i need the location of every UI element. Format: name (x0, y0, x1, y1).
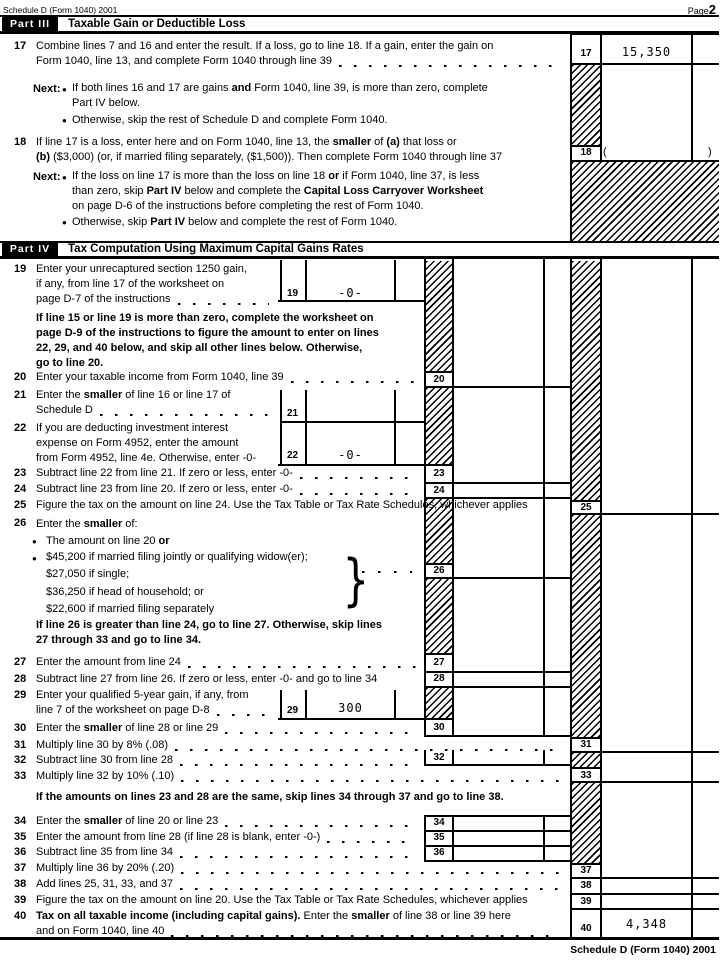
next-18-bullet-2: Otherwise, skip Part IV below and comple… (72, 215, 397, 230)
line-21-box-label: 21 (280, 407, 305, 420)
dotted-leader (188, 666, 416, 668)
line-40-text: Tax on all taxable income (including cap… (36, 910, 564, 940)
line-18-amount-field[interactable] (605, 146, 689, 159)
line-24-box-label: 24 (424, 484, 454, 497)
line-25-text: Figure the tax on the amount on line 24.… (36, 499, 566, 514)
line-21-text: Enter the smaller of line 16 or line 17 … (36, 389, 274, 419)
line-22-box-label: 22 (280, 449, 305, 462)
line-20-box-label: 20 (424, 373, 454, 386)
footer-form-id: Schedule D (Form 1040) 2001 (440, 944, 716, 956)
part-iii-title: Taxable Gain or Deductible Loss (68, 18, 245, 30)
line-37-number: 37 (14, 862, 26, 874)
dotted-leader (339, 65, 556, 67)
line-34-number: 34 (14, 815, 26, 827)
line-26-bullet-2: $45,200 if married filing jointly or qua… (46, 551, 346, 621)
line-28-amount-field[interactable] (454, 673, 542, 685)
line-26-bullet-1: The amount on line 20 or (46, 534, 170, 549)
line-38-amount-field[interactable] (602, 879, 690, 892)
line-35-amount-field[interactable] (454, 831, 542, 844)
line-28-number: 28 (14, 673, 26, 685)
next-17-bullet-2: Otherwise, skip the rest of Schedule D a… (72, 113, 388, 128)
line-39-number: 39 (14, 894, 26, 906)
bullet-icon: ● (32, 537, 37, 547)
line-23-number: 23 (14, 467, 26, 479)
line-18-box-label: 18 (570, 146, 602, 159)
hatch-fill (572, 783, 600, 863)
hatch-fill (426, 261, 452, 371)
line-21-amount-field[interactable] (307, 406, 393, 420)
line-27-text: Enter the amount from line 24 (36, 656, 420, 671)
dotted-leader (300, 493, 416, 495)
line-37-amount-field[interactable] (602, 865, 690, 876)
dotted-leader (327, 841, 416, 843)
line-32-text: Subtract line 30 from line 28 (36, 754, 420, 769)
grid-line (280, 421, 424, 423)
grid-line (424, 464, 454, 466)
dotted-leader (291, 381, 416, 383)
grid-line (424, 718, 454, 720)
line-26-amount-field[interactable] (454, 565, 542, 576)
line-18-text: If line 17 is a loss, enter here and on … (36, 136, 560, 166)
line-38-box-label: 38 (570, 879, 602, 892)
note-after-26: If line 26 is greater than line 24, go t… (36, 619, 428, 650)
hatch-fill (572, 162, 719, 241)
line-30-text: Enter the smaller of line 28 or line 29 (36, 722, 420, 737)
line-37-box-label: 37 (570, 864, 602, 877)
line-31-number: 31 (14, 739, 26, 751)
line-40-box-label: 40 (570, 922, 602, 935)
line-24-number: 24 (14, 483, 26, 495)
bullet-icon: ● (62, 218, 67, 228)
line-30-amount-field[interactable] (454, 720, 542, 734)
line-17-number: 17 (14, 40, 26, 52)
line-27-box-label: 27 (424, 656, 454, 669)
line-24-text: Subtract line 23 from line 20. If zero o… (36, 483, 420, 498)
line-28-box-label: 28 (424, 672, 454, 685)
line-34-box-label: 34 (424, 816, 454, 829)
line-18-paren-close: ) (708, 146, 712, 158)
dotted-leader (225, 825, 416, 827)
line-39-box-label: 39 (570, 895, 602, 908)
line-29-number: 29 (14, 689, 26, 701)
rule (0, 15, 719, 17)
hatch-fill (426, 579, 452, 653)
line-25-amount-field[interactable] (602, 502, 690, 512)
grid-line (394, 690, 396, 720)
line-26-text: Enter the smaller of: (36, 517, 138, 532)
grid-line (600, 259, 602, 939)
line-36-amount-field[interactable] (454, 846, 542, 859)
line-20-text: Enter your taxable income from Form 1040… (36, 371, 420, 386)
line-19-box-label: 19 (280, 287, 305, 300)
line-35-box-label: 35 (424, 831, 454, 844)
line-24-amount-field[interactable] (454, 485, 542, 496)
line-17-amount-field[interactable]: 15,350 (602, 45, 691, 59)
line-27-amount-field[interactable] (454, 655, 542, 670)
grid-line (424, 653, 454, 655)
line-33-amount-field[interactable] (602, 770, 690, 780)
dotted-leader (362, 571, 412, 573)
hatch-fill (426, 688, 452, 718)
dotted-leader (100, 414, 270, 416)
line-34-amount-field[interactable] (454, 816, 542, 829)
line-32-number: 32 (14, 754, 26, 766)
grid-line (394, 260, 396, 302)
note-after-19: If line 15 or line 19 is more than zero,… (36, 312, 428, 372)
line-31-text: Multiply line 30 by 8% (.08) (36, 739, 564, 754)
next-18-label: Next: (33, 170, 61, 185)
line-29-box-label: 29 (280, 704, 305, 717)
line-23-amount-field[interactable] (454, 467, 542, 481)
line-17-text: Combine lines 7 and 16 and enter the res… (36, 40, 560, 70)
line-31-box-label: 31 (570, 738, 602, 751)
line-27-number: 27 (14, 656, 26, 668)
grid-line (570, 908, 719, 910)
dotted-leader (180, 856, 416, 858)
next-18-bullet-1: If the loss on line 17 is more than the … (72, 170, 562, 215)
line-33-number: 33 (14, 770, 26, 782)
line-40-number: 40 (14, 910, 26, 922)
dotted-leader (217, 714, 269, 716)
hatch-fill (572, 753, 600, 767)
line-30-number: 30 (14, 722, 26, 734)
next-17-bullet-1: If both lines 16 and 17 are gains and Fo… (72, 82, 548, 112)
line-31-amount-field[interactable] (602, 739, 690, 749)
rule (0, 256, 719, 259)
dotted-leader (181, 780, 560, 782)
line-26-box-label: 26 (424, 564, 454, 577)
line-17-box-label: 17 (570, 47, 602, 60)
hatch-fill (572, 65, 600, 145)
schedule-d-page-2: Schedule D (Form 1040) 2001 Page2 Part I… (0, 0, 721, 963)
dotted-leader (171, 935, 560, 937)
bullet-icon: ● (32, 554, 37, 564)
line-33-box-label: 33 (570, 769, 602, 782)
bullet-icon: ● (62, 116, 67, 126)
dotted-leader (175, 749, 560, 751)
dotted-leader (225, 732, 416, 734)
grid-line (278, 464, 424, 466)
line-37-text: Multiply line 36 by 20% (.20) (36, 862, 564, 877)
line-40-amount-field[interactable]: 4,348 (602, 917, 691, 931)
line-30-box-label: 30 (424, 721, 454, 734)
grid-line (424, 764, 570, 766)
line-28-text: Subtract line 27 from line 26. If zero o… (36, 673, 424, 688)
note-after-33: If the amounts on lines 23 and 28 are th… (36, 791, 566, 806)
dotted-leader (181, 872, 560, 874)
line-29-text: Enter your qualified 5-year gain, if any… (36, 689, 273, 719)
line-33-text: Multiply line 32 by 10% (.10) (36, 770, 564, 785)
grid-line (278, 718, 424, 720)
line-18-number: 18 (14, 136, 26, 148)
part-iii-badge: Part III (2, 17, 58, 31)
dotted-leader (180, 764, 416, 766)
line-20-number: 20 (14, 371, 26, 383)
line-23-box-label: 23 (424, 467, 454, 480)
grid-line (424, 735, 570, 737)
line-36-box-label: 36 (424, 846, 454, 859)
bullet-icon: ● (62, 85, 67, 95)
line-36-number: 36 (14, 846, 26, 858)
line-19-amount-field[interactable]: -0- (307, 286, 394, 300)
line-34-text: Enter the smaller of line 20 or line 23 (36, 815, 420, 830)
part-iv-title: Tax Computation Using Maximum Capital Ga… (68, 243, 364, 255)
line-21-number: 21 (14, 389, 26, 401)
line-22-text: If you are deducting investment interest… (36, 422, 274, 467)
bullet-icon: ● (62, 173, 67, 183)
grid-line (691, 33, 693, 162)
line-39-text: Figure the tax on the amount on line 20.… (36, 894, 566, 909)
line-25-box-label: 25 (570, 501, 602, 514)
grid-line (691, 259, 693, 939)
hatch-fill (572, 261, 600, 500)
line-22-number: 22 (14, 422, 26, 434)
hatch-fill (426, 388, 452, 464)
grid-line (278, 300, 424, 302)
line-23-text: Subtract line 22 from line 21. If zero o… (36, 467, 420, 482)
line-36-text: Subtract line 35 from line 34 (36, 846, 420, 861)
line-19-number: 19 (14, 263, 26, 275)
line-35-number: 35 (14, 831, 26, 843)
brace-glyph: } (342, 550, 369, 612)
line-20-amount-field[interactable] (454, 372, 542, 385)
line-38-text: Add lines 25, 31, 33, and 37 (36, 878, 564, 893)
line-39-amount-field[interactable] (602, 895, 690, 907)
line-29-amount-field[interactable]: 300 (307, 701, 394, 715)
grid-line (394, 390, 396, 466)
line-35-text: Enter the amount from line 28 (if line 2… (36, 831, 420, 846)
line-22-amount-field[interactable]: -0- (307, 448, 394, 462)
next-17-label: Next: (33, 82, 61, 97)
line-19-text: Enter your unrecaptured section 1250 gai… (36, 263, 273, 308)
grid-line (570, 33, 719, 35)
line-25-number: 25 (14, 499, 26, 511)
hatch-fill (572, 515, 600, 737)
dotted-leader (180, 888, 560, 890)
dotted-leader (300, 477, 416, 479)
dotted-leader (178, 303, 269, 305)
line-26-number: 26 (14, 517, 26, 529)
line-38-number: 38 (14, 878, 26, 890)
grid-line (543, 815, 545, 862)
part-iv-badge: Part IV (2, 243, 58, 256)
